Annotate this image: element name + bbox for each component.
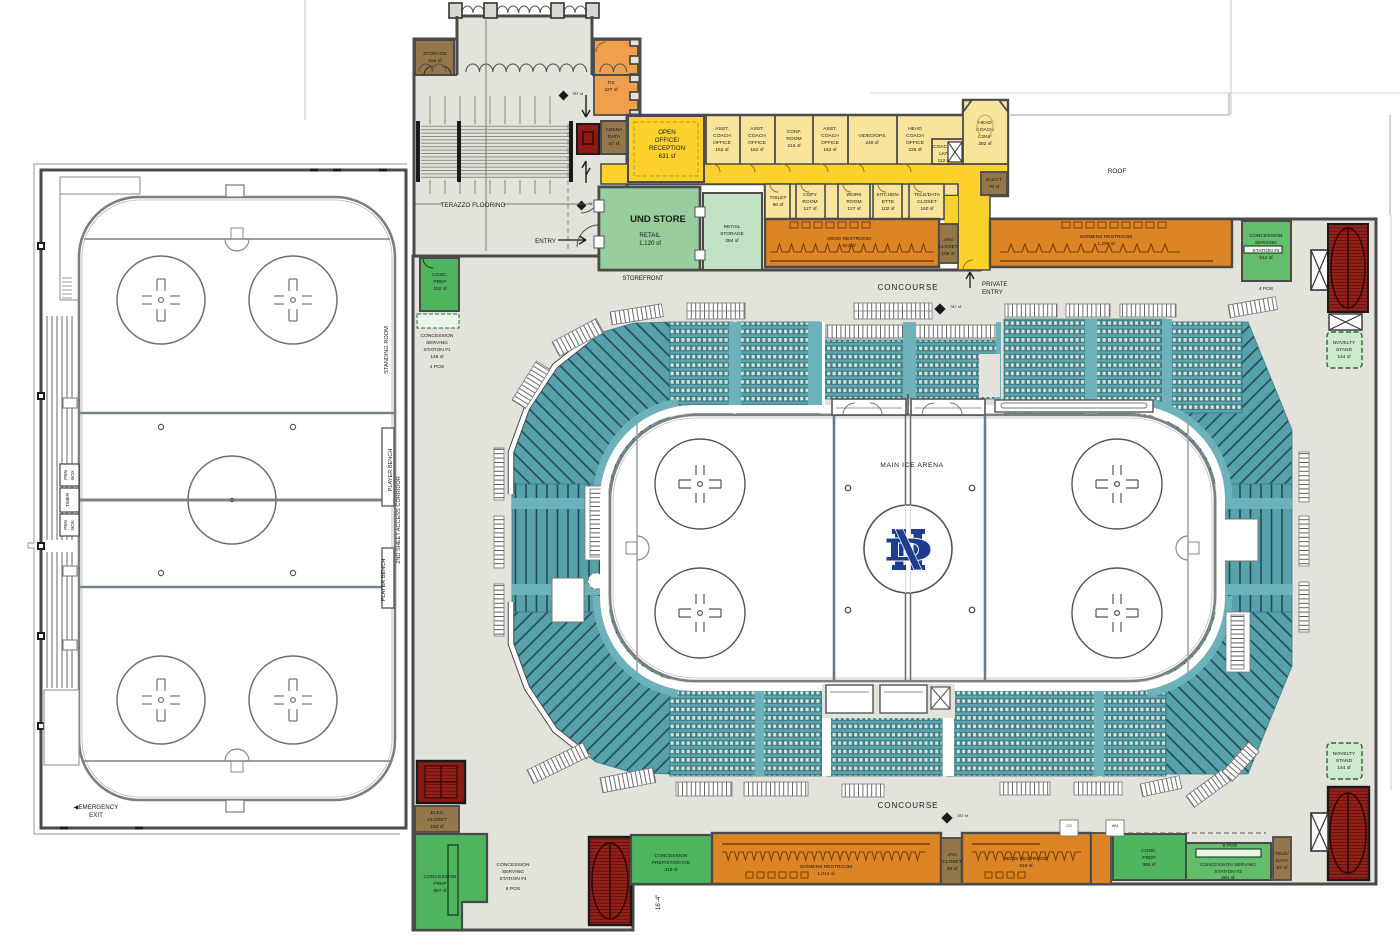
svg-text:216 sf: 216 sf — [787, 143, 801, 149]
svg-text:UND STORE: UND STORE — [630, 214, 686, 225]
svg-text:152 sf: 152 sf — [433, 286, 447, 292]
svg-text:226 sf: 226 sf — [908, 147, 922, 153]
svg-text:98 sf: 98 sf — [947, 866, 958, 872]
svg-text:WOMENS RESTROOM: WOMENS RESTROOM — [1080, 234, 1132, 240]
svg-text:CONC.: CONC. — [432, 272, 448, 278]
svg-text:4 POS: 4 POS — [430, 364, 445, 370]
svg-text:631 sf: 631 sf — [659, 153, 676, 160]
svg-text:◀EMERGENCY: ◀EMERGENCY — [74, 804, 119, 811]
svg-text:57 sf: 57 sf — [1277, 865, 1288, 871]
svg-text:ROOM: ROOM — [802, 199, 817, 205]
svg-text:365 sf: 365 sf — [1142, 862, 1156, 868]
svg-text:JAN: JAN — [947, 852, 957, 858]
svg-text:STAND: STAND — [1336, 347, 1353, 353]
svg-text:ASST.: ASST. — [750, 126, 764, 132]
svg-text:KITCHEN-: KITCHEN- — [876, 192, 899, 198]
svg-text:STANDING ROOM: STANDING ROOM — [384, 326, 390, 374]
svg-text:HEAD: HEAD — [978, 120, 992, 126]
svg-text:CO: CO — [1066, 824, 1072, 828]
svg-text:6 POS: 6 POS — [506, 886, 521, 892]
svg-text:CLOSET: CLOSET — [427, 817, 447, 823]
svg-text:PREP: PREP — [1142, 855, 1155, 861]
svg-text:STATION #4: STATION #4 — [499, 876, 527, 882]
svg-text:PLAYER BENCH: PLAYER BENCH — [388, 449, 394, 492]
svg-text:COACH: COACH — [906, 133, 924, 139]
svg-text:PREP/STORAGE: PREP/STORAGE — [652, 860, 691, 866]
svg-text:MENS RESTROOM: MENS RESTROOM — [1004, 856, 1048, 862]
svg-text:ENTRY: ENTRY — [535, 238, 556, 245]
svg-text:284 sf: 284 sf — [725, 238, 739, 244]
svg-text:MAIN ICE ARENA: MAIN ICE ARENA — [880, 462, 944, 469]
svg-text:STAND: STAND — [1336, 758, 1353, 764]
svg-text:CONCESSION: CONCESSION — [424, 874, 457, 880]
svg-text:ETTE: ETTE — [882, 199, 895, 205]
svg-text:823 sf: 823 sf — [842, 243, 856, 249]
svg-text:OFFICE: OFFICE — [821, 140, 840, 146]
svg-text:150 sf: 150 sf — [430, 824, 444, 830]
svg-text:146 sf: 146 sf — [430, 354, 444, 360]
svg-text:102 sf: 102 sf — [881, 206, 895, 212]
svg-text:ASST.: ASST. — [823, 126, 837, 132]
svg-text:CONF.: CONF. — [787, 129, 802, 135]
svg-text:RECEPTION: RECEPTION — [649, 145, 685, 152]
svg-text:ROOM: ROOM — [846, 199, 861, 205]
svg-text:CONCESSION: CONCESSION — [1250, 233, 1283, 239]
svg-text:TELE/DATA: TELE/DATA — [914, 192, 941, 198]
svg-text:PEN: PEN — [63, 520, 68, 529]
svg-text:CONCESSION SERVING: CONCESSION SERVING — [1200, 862, 1256, 868]
svg-text:618 sf: 618 sf — [1019, 863, 1033, 869]
svg-text:BOX: BOX — [70, 520, 75, 530]
svg-text:ELECT: ELECT — [986, 177, 1002, 183]
svg-text:78T sf: 78T sf — [572, 91, 584, 96]
svg-text:STATION #1: STATION #1 — [423, 347, 451, 353]
svg-text:1,014 sf: 1,014 sf — [817, 871, 835, 877]
svg-text:160 sf: 160 sf — [920, 206, 934, 212]
svg-text:STOREFRONT: STOREFRONT — [622, 276, 664, 282]
svg-text:NOVELTY: NOVELTY — [1333, 751, 1356, 757]
svg-text:4 POS: 4 POS — [1259, 286, 1274, 292]
svg-text:CONCOURSE: CONCOURSE — [877, 801, 938, 810]
svg-text:TOILET: TOILET — [769, 195, 786, 201]
svg-text:6 POS: 6 POS — [1223, 843, 1238, 849]
svg-text:ROOF: ROOF — [1108, 168, 1127, 175]
svg-text:TELE/: TELE/ — [1275, 851, 1289, 857]
svg-text:787 sf: 787 sf — [957, 813, 969, 818]
svg-text:STATION #2: STATION #2 — [1252, 248, 1280, 254]
svg-text:281 sf: 281 sf — [1221, 875, 1235, 881]
svg-text:COACH: COACH — [748, 133, 766, 139]
svg-text:HEAD: HEAD — [908, 126, 922, 132]
svg-text:162 sf: 162 sf — [750, 147, 764, 153]
svg-text:CONCOURSE: CONCOURSE — [877, 283, 938, 292]
svg-text:ASST.: ASST. — [715, 126, 729, 132]
svg-text:COACH: COACH — [821, 133, 839, 139]
svg-text:CONC.: CONC. — [1141, 848, 1157, 854]
svg-text:512 sf: 512 sf — [1259, 255, 1273, 261]
svg-text:1,298 sf: 1,298 sf — [1097, 241, 1115, 247]
svg-text:327 sf: 327 sf — [604, 87, 618, 93]
svg-text:144 sf: 144 sf — [1337, 354, 1351, 360]
svg-text:1,120 sf: 1,120 sf — [639, 240, 661, 247]
svg-text:WORK: WORK — [846, 192, 862, 198]
svg-text:897 sf: 897 sf — [433, 888, 447, 894]
svg-text:TERAZZO FLOORING: TERAZZO FLOORING — [441, 202, 506, 209]
svg-text:PREP: PREP — [433, 881, 446, 887]
svg-text:RETAIL: RETAIL — [724, 224, 741, 230]
svg-text:787 sf: 787 sf — [950, 304, 962, 309]
svg-text:127 sf: 127 sf — [847, 206, 861, 212]
svg-text:DATA: DATA — [608, 134, 621, 140]
svg-text:418 sf: 418 sf — [664, 867, 678, 873]
svg-text:CONCESSION: CONCESSION — [655, 853, 688, 859]
svg-text:STATION #3: STATION #3 — [1214, 869, 1242, 875]
svg-text:16'-4": 16'-4" — [656, 895, 662, 910]
svg-text:PREP: PREP — [433, 279, 446, 285]
svg-text:OFFICE: OFFICE — [748, 140, 767, 146]
svg-text:70 sf: 70 sf — [989, 184, 1000, 190]
svg-text:144 sf: 144 sf — [1337, 765, 1351, 771]
svg-text:COPY: COPY — [803, 192, 818, 198]
svg-text:87 sf: 87 sf — [609, 141, 620, 147]
svg-text:DATA: DATA — [1276, 858, 1289, 864]
svg-text:NOVELTY: NOVELTY — [1333, 340, 1356, 346]
svg-text:ELEC: ELEC — [431, 810, 444, 816]
svg-text:BOX: BOX — [70, 470, 75, 480]
svg-text:WM: WM — [1112, 824, 1118, 828]
svg-text:EXIT: EXIT — [89, 812, 103, 819]
svg-text:STORAGE: STORAGE — [720, 231, 745, 237]
svg-text:2ND SHEET ACCESS CORRIDOR: 2ND SHEET ACCESS CORRIDOR — [396, 476, 402, 564]
svg-text:TIX: TIX — [607, 80, 615, 86]
svg-text:248 sf: 248 sf — [865, 140, 879, 146]
svg-text:WOMENS RESTROOM: WOMENS RESTROOM — [800, 864, 852, 870]
svg-text:CLOSET: CLOSET — [917, 199, 937, 205]
svg-text:PLAYER BENCH: PLAYER BENCH — [381, 559, 387, 602]
svg-text:166 sf: 166 sf — [428, 58, 442, 64]
svg-text:SERVING: SERVING — [426, 340, 448, 346]
svg-text:CONCESSION: CONCESSION — [497, 862, 530, 868]
svg-text:CONCESSION: CONCESSION — [421, 333, 454, 339]
svg-text:STORAGE: STORAGE — [423, 51, 448, 57]
svg-text:PRIVATE: PRIVATE — [982, 281, 1008, 288]
svg-text:VIDEO/OPS: VIDEO/OPS — [859, 133, 887, 139]
svg-text:162 sf: 162 sf — [715, 147, 729, 153]
svg-text:RETAIL: RETAIL — [639, 232, 661, 239]
svg-text:OFFICE/: OFFICE/ — [655, 137, 680, 144]
svg-text:OFFICE: OFFICE — [906, 140, 925, 146]
svg-text:CLOSET: CLOSET — [942, 859, 962, 865]
svg-text:162 sf: 162 sf — [823, 147, 837, 153]
svg-text:ARENA: ARENA — [606, 127, 624, 133]
svg-text:SERVING: SERVING — [1255, 240, 1277, 246]
svg-text:OPEN: OPEN — [658, 129, 676, 136]
svg-text:MENS RESTROOM: MENS RESTROOM — [827, 236, 871, 242]
svg-text:SERVING: SERVING — [502, 869, 524, 875]
svg-text:OFFICE: OFFICE — [713, 140, 732, 146]
svg-text:ENTRY: ENTRY — [982, 289, 1003, 296]
svg-text:282 sf: 282 sf — [978, 141, 992, 147]
svg-text:PEN: PEN — [63, 470, 68, 479]
svg-text:TIMER: TIMER — [65, 492, 70, 507]
svg-text:80 sf: 80 sf — [773, 202, 784, 208]
svg-text:ROOM: ROOM — [786, 136, 801, 142]
svg-text:COACH: COACH — [713, 133, 731, 139]
svg-text:127 sf: 127 sf — [803, 206, 817, 212]
